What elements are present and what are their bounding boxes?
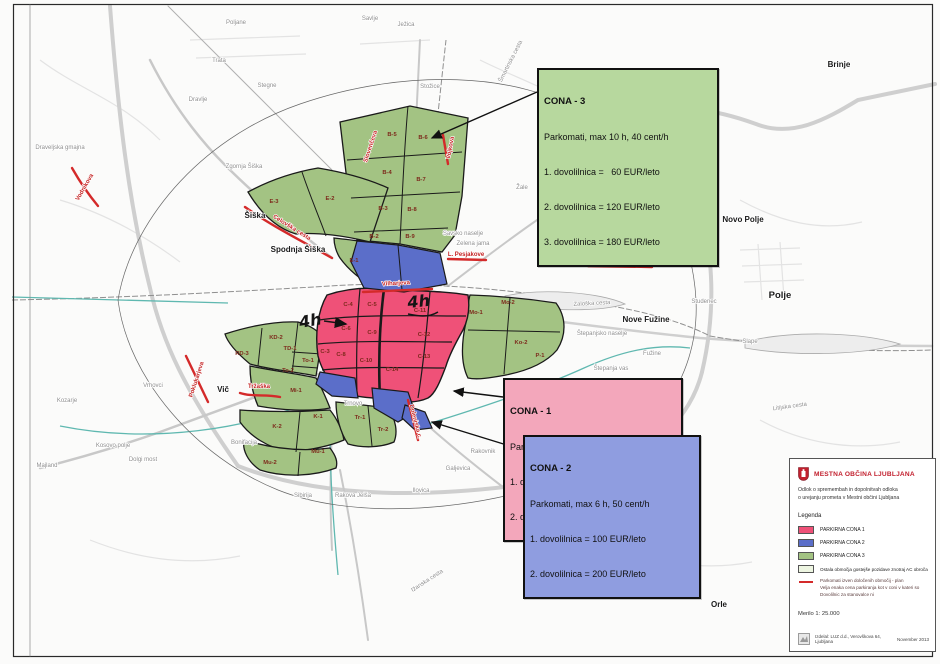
legend-credit: Izdelal: LUZ d.d., Verovškova 64, Ljublj… (815, 634, 892, 644)
zone-label: To-2 (282, 368, 294, 374)
legend-heading: Legenda (798, 513, 821, 519)
plan-note-line: Parkomati izven določenih območij - plan (820, 578, 919, 585)
zone-label: Mi-1 (290, 388, 302, 394)
place-label: Nove Fužine (622, 315, 670, 324)
zone-label: B-3 (378, 206, 388, 212)
luz-logo-icon (798, 633, 810, 645)
callout-cona2: CONA - 2 Parkomati, max 6 h, 50 cent/h 1… (523, 435, 701, 599)
callout-cona3-line: 1. dovolilnica = 60 EUR/leto (544, 167, 712, 179)
place-label: Poljane (226, 20, 247, 26)
zone-label: C-12 (418, 332, 431, 338)
zone-label: E-2 (325, 196, 334, 202)
legend-item-cona2: PARKIRNA CONA 2 (798, 539, 865, 547)
place-label: Dravlje (189, 97, 208, 103)
zone-label: E-3 (269, 199, 279, 205)
zone-label: C-9 (367, 330, 377, 336)
zone-label: E-1 (349, 258, 359, 264)
place-label: Slape (742, 339, 758, 345)
street-label: Litijska cesta (772, 402, 808, 413)
zone-label: C-8 (336, 352, 346, 358)
place-label: Štepanja vas (594, 365, 629, 372)
zone-label: KD-2 (269, 335, 283, 341)
place-label: Draveljska gmajna (35, 145, 85, 151)
place-label: Trata (212, 58, 226, 64)
zone-label: B-6 (418, 135, 428, 141)
place-label: Ježica (397, 22, 415, 28)
place-label: Rakovnik (471, 449, 497, 455)
zone-label: C-3 (320, 349, 330, 355)
legend-municipality: MESTNA OBČINA LJUBLJANA (814, 471, 915, 478)
legend-title-row: MESTNA OBČINA LJUBLJANA (798, 467, 915, 481)
place-label: Kosovo polje (96, 443, 131, 449)
callout-cona3-title: CONA - 3 (544, 96, 712, 108)
callout-cona1-title: CONA - 1 (510, 406, 676, 418)
zone-label: B-8 (407, 207, 417, 213)
plan-note-line: Velja enaka cena parkiranja kot v coni v… (820, 585, 919, 592)
zone-label: C-10 (360, 358, 373, 364)
legend-credit-row: Izdelal: LUZ d.d., Verovškova 64, Ljublj… (798, 633, 929, 645)
zone-label: Mo-1 (469, 310, 483, 316)
legend-item-label: PARKIRNA CONA 2 (820, 540, 865, 546)
place-label: Sibirija (294, 493, 313, 499)
zone-label: C-5 (367, 302, 377, 308)
zone-label: TD-1 (284, 346, 298, 352)
place-label: Vrhovci (143, 383, 163, 389)
handwritten-4h-right: 4h (405, 291, 430, 312)
place-label: Zgornja Šiška (226, 163, 263, 170)
place-label: Kozarje (57, 398, 78, 404)
callout-cona2-line: 2. dovolilnica = 200 EUR/leto (530, 569, 694, 581)
zone-label: K-2 (272, 424, 281, 430)
cona3-swatch (798, 552, 814, 560)
place-label: Šiška (245, 211, 266, 220)
scanned-parking-zone-map: B-5 B-6 B-4 B-7 B-3 B-8 B-2 B-9 E-3 E-2 … (0, 0, 940, 664)
place-label: Fužine (643, 351, 662, 357)
zone-label: RD-3 (235, 351, 249, 357)
legend-item-cona3: PARKIRNA CONA 3 (798, 552, 865, 560)
zone-label: B-4 (382, 170, 392, 176)
legend-subtitle-line1: Odlok o spremembah in dopolnitvah odloka (798, 487, 899, 495)
zone-label: Ko-2 (515, 340, 528, 346)
street-label: Šmartinska cesta (497, 39, 524, 84)
zone-label: B-5 (387, 132, 397, 138)
street-label: Tržaška (248, 384, 271, 390)
place-label: Brinje (828, 60, 851, 69)
place-label: Savlje (362, 16, 379, 22)
callout-cona3: CONA - 3 Parkomati, max 10 h, 40 cent/h … (537, 68, 719, 267)
street-label: L. Pesjakove (448, 252, 485, 258)
place-label: Bonifacija (231, 440, 258, 446)
zone-label: Mu-1 (311, 449, 325, 455)
place-label: Vič (217, 385, 229, 394)
place-label: Galjevica (446, 466, 471, 472)
callout-cona2-title: CONA - 2 (530, 463, 694, 475)
callout-cona2-subtitle: Parkomati, max 6 h, 50 cent/h (530, 499, 694, 511)
handwritten-4h-left: 4h (296, 309, 322, 332)
place-label: Zelena jama (456, 241, 490, 247)
callout-cona3-line: 3. dovolilnica = 180 EUR/leto (544, 237, 712, 249)
legend-item-label: PARKIRNA CONA 3 (820, 553, 865, 559)
red-plan-line-swatch (798, 578, 814, 586)
cona1-swatch (798, 526, 814, 534)
zone-label: B-9 (405, 234, 415, 240)
legend-panel: MESTNA OBČINA LJUBLJANA Odlok o sprememb… (789, 458, 936, 652)
legend-item-cona1: PARKIRNA CONA 1 (798, 526, 865, 534)
legend-subtitle: Odlok o spremembah in dopolnitvah odloka… (798, 487, 899, 502)
callout-cona3-line: 2. dovolilnica = 120 EUR/leto (544, 202, 712, 214)
place-label: Spodnja Šiška (271, 245, 326, 254)
legend-item-label: Ostala območja gostejše pozidave znotraj… (820, 567, 928, 572)
cona2-swatch (798, 539, 814, 547)
zone-label: To-1 (302, 358, 315, 364)
place-label: Žale (516, 183, 528, 191)
legend-plan-note: Parkomati izven določenih območij - plan… (798, 578, 919, 599)
place-label: Rakova Jelša (335, 493, 372, 499)
ljubljana-coat-of-arms-icon (798, 467, 809, 481)
place-label: Dolgi most (129, 457, 158, 463)
legend-item-other-areas: Ostala območja gostejše pozidave znotraj… (798, 565, 928, 573)
zone-label: C-6 (341, 326, 351, 332)
zone-label: Tr-2 (378, 427, 389, 433)
street-label: Ižanska cesta (410, 568, 445, 593)
zone-label: K-1 (313, 414, 323, 420)
legend-scale: Merilo 1: 25.000 (798, 611, 840, 617)
legend-subtitle-line2: o urejanju prometa v Mestni občini Ljubl… (798, 495, 899, 503)
zone-label: Tr-1 (355, 415, 366, 421)
place-label: Štepanjsko naselje (577, 330, 628, 337)
legend-item-label: PARKIRNA CONA 1 (820, 527, 865, 533)
zone-label: B-7 (416, 177, 425, 183)
place-label: Polje (769, 290, 792, 301)
plan-note-line: Dovolilnic za stanovalce ni (820, 592, 919, 599)
zone-label: C-14 (386, 367, 399, 373)
zone-label: Mu-2 (263, 460, 277, 466)
place-label: Ilovica (412, 488, 430, 494)
place-label: Majland (36, 463, 57, 469)
zone-label: P-1 (535, 353, 545, 359)
zone-label: Mo-2 (501, 300, 515, 306)
callout-cona2-line: 1. dovolilnica = 100 EUR/leto (530, 534, 694, 546)
place-label: Stegne (257, 83, 277, 89)
other-areas-swatch (798, 565, 814, 573)
zone-label: C-4 (343, 302, 353, 308)
place-label: Studenec (691, 299, 716, 305)
place-label: Stožice (420, 84, 440, 90)
place-label: Trnovo (344, 401, 363, 407)
zone-label: C-13 (418, 354, 431, 360)
zone-label: B-2 (369, 234, 378, 240)
callout-cona3-subtitle: Parkomati, max 10 h, 40 cent/h (544, 132, 712, 144)
place-label: Novo Polje (722, 215, 764, 224)
place-label: Orle (711, 600, 728, 609)
place-label: Savsko naselje (443, 231, 484, 237)
legend-date: November 2013 (897, 637, 929, 642)
